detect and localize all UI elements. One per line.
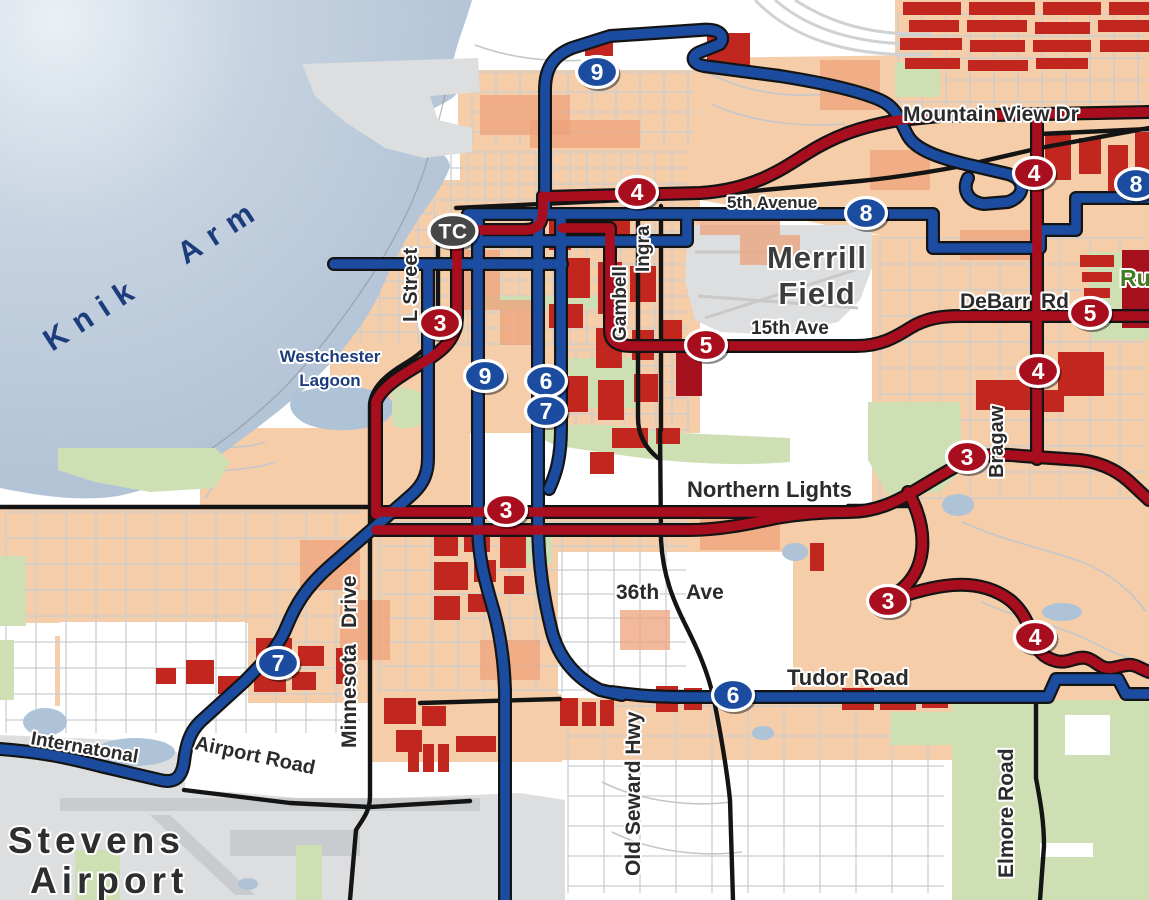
svg-text:9: 9 — [479, 363, 492, 389]
svg-text:5: 5 — [1084, 300, 1097, 326]
street-label-mountain-view-dr: Mountain View Dr — [903, 103, 1079, 126]
pond — [238, 878, 258, 890]
dense-landuse-block — [810, 543, 824, 571]
open-area — [60, 622, 245, 734]
dense-landuse-block — [423, 744, 434, 772]
dense-landuse-block — [970, 40, 1025, 52]
street-label-drive: Drive — [338, 575, 361, 628]
dense-landuse-block — [590, 452, 614, 474]
open-area — [558, 552, 793, 694]
dense-landuse-block — [434, 596, 460, 620]
dense-landuse-block — [582, 702, 596, 726]
dense-landuse-block — [504, 576, 524, 594]
park-area — [890, 712, 952, 745]
anchorage-transit-map[interactable]: Mountain View Dr5th Avenue15th AveDeBarr… — [0, 0, 1149, 900]
dense-landuse-block — [968, 60, 1028, 71]
dense-landuse-block — [1036, 58, 1088, 69]
commercial-block — [620, 610, 670, 650]
dense-landuse-block — [422, 706, 446, 726]
dense-landuse-block — [1079, 138, 1101, 174]
dense-landuse-block — [598, 380, 624, 420]
runway — [230, 830, 360, 856]
park-area — [0, 640, 14, 700]
svg-text:4: 4 — [631, 179, 644, 205]
westchester-lagoon-1: Westchester — [280, 347, 381, 366]
svg-text:7: 7 — [540, 398, 553, 424]
westchester-lagoon-2: Lagoon — [299, 371, 360, 390]
merrill-field-1: Merrill — [767, 240, 867, 275]
svg-text:4: 4 — [1032, 358, 1045, 384]
svg-text:8: 8 — [860, 200, 873, 226]
street-label-tudor-road: Tudor Road — [787, 665, 909, 690]
dense-landuse-block — [384, 698, 416, 724]
park-area — [296, 845, 322, 900]
street-label-bragaw: Bragaw — [986, 405, 1008, 478]
street-label-rd: Rd — [1041, 290, 1069, 313]
street-label-ave: Ave — [686, 581, 724, 604]
street-label-debarr: DeBarr — [960, 290, 1030, 313]
dense-landuse-block — [156, 668, 176, 684]
pond — [1042, 603, 1082, 621]
street-label-l-street: L Street — [400, 248, 422, 322]
park-notch — [1040, 843, 1093, 857]
park-area — [952, 700, 1149, 900]
dense-landuse-block — [1100, 40, 1149, 52]
dense-landuse-block — [1109, 2, 1149, 15]
map-canvas[interactable]: Mountain View Dr5th Avenue15th AveDeBarr… — [0, 0, 1149, 900]
dense-landuse-block — [1098, 20, 1149, 32]
street-label-gambell: Gambell — [610, 266, 631, 341]
dense-landuse-block — [298, 646, 324, 666]
street-label-elmore-road: Elmore Road — [995, 748, 1018, 878]
svg-text:4: 4 — [1029, 624, 1042, 650]
svg-text:5: 5 — [700, 332, 713, 358]
svg-text:6: 6 — [727, 682, 740, 708]
stevens-airport-2: Airport — [30, 860, 188, 900]
open-area — [742, 762, 950, 898]
dense-landuse-block — [1035, 22, 1090, 34]
merrill-field-2: Field — [778, 276, 855, 311]
pond — [752, 726, 774, 740]
park-area — [0, 556, 26, 626]
park-notch — [1065, 715, 1110, 755]
dense-landuse-block — [969, 2, 1035, 15]
street-label-15th-ave: 15th Ave — [751, 318, 829, 339]
svg-text:3: 3 — [434, 310, 447, 336]
svg-text:3: 3 — [500, 497, 513, 523]
dense-landuse-block — [909, 20, 959, 32]
svg-text:6: 6 — [540, 368, 553, 394]
svg-text:7: 7 — [272, 650, 285, 676]
stevens-airport-1: Stevens — [8, 820, 185, 861]
dense-landuse-block — [438, 744, 449, 772]
dense-landuse-block — [967, 20, 1027, 32]
dense-landuse-block — [408, 744, 419, 772]
dense-landuse-block — [434, 562, 468, 590]
street-label-northern-lights: Northern Lights — [687, 477, 852, 502]
dense-landuse-block — [905, 58, 960, 69]
pond — [782, 543, 808, 561]
dense-landuse-block — [900, 38, 962, 50]
dense-landuse-block — [1033, 40, 1091, 52]
svg-text:4: 4 — [1028, 160, 1041, 186]
dense-landuse-block — [903, 2, 961, 15]
street-label-5th-avenue: 5th Avenue — [727, 193, 817, 212]
svg-text:3: 3 — [961, 444, 974, 470]
dense-landuse-block — [1058, 352, 1104, 396]
pond — [942, 494, 974, 516]
street-label-old-seward-hwy: Old Seward Hwy — [622, 711, 645, 876]
street-label-ingra: Ingra — [633, 225, 654, 272]
dense-landuse-block — [560, 698, 578, 726]
dense-landuse-block — [600, 700, 614, 726]
dense-landuse-block — [186, 660, 214, 684]
svg-text:TC: TC — [439, 221, 468, 244]
dense-landuse-block — [456, 736, 496, 752]
svg-text:9: 9 — [591, 59, 604, 85]
residential-area — [0, 508, 250, 623]
svg-text:8: 8 — [1130, 171, 1143, 197]
dense-landuse-block — [1080, 255, 1114, 267]
russian-jack: Ru — [1120, 265, 1149, 291]
street-label-minnesota: Minnesota — [338, 644, 361, 748]
svg-text:3: 3 — [882, 588, 895, 614]
dense-landuse-block — [1043, 2, 1101, 15]
dense-landuse-block — [1082, 272, 1112, 282]
street-label-36th: 36th — [616, 581, 659, 604]
